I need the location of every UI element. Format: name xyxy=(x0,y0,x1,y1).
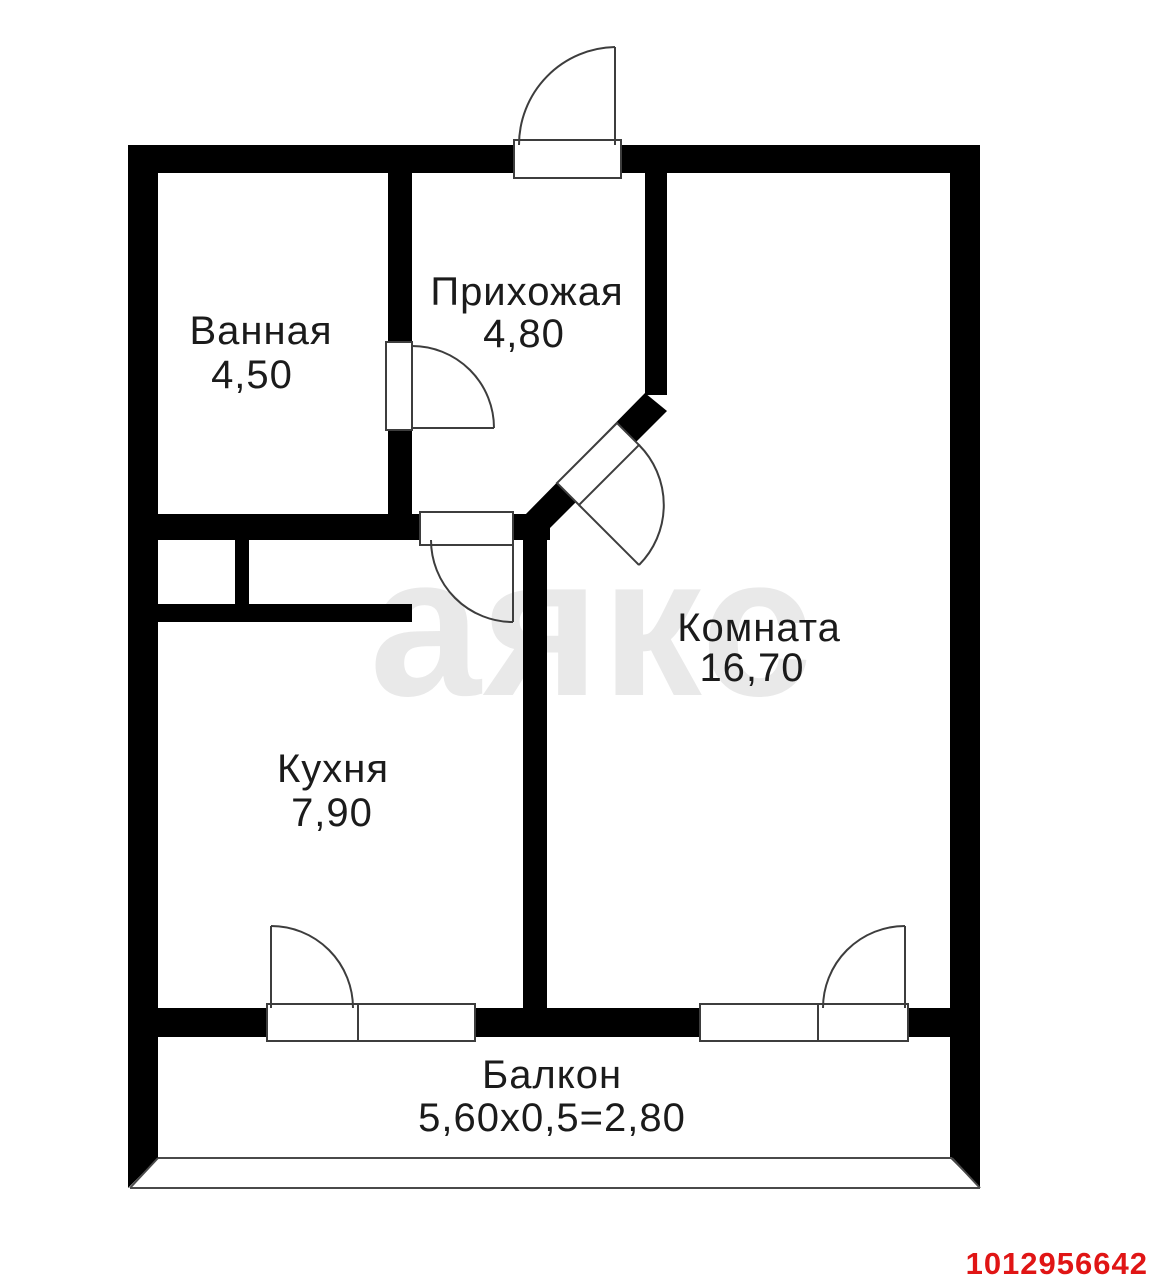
kitchen-label: Кухня xyxy=(277,747,389,791)
bathroom-door-frame xyxy=(386,342,412,430)
bathroom-door-swing-arc xyxy=(412,346,494,428)
room-balcony-door xyxy=(700,926,908,1041)
room-balcony-frame xyxy=(700,1004,908,1041)
closet-bottom-wall xyxy=(158,604,412,622)
balcony-wall-segment-middle xyxy=(475,1008,700,1037)
balcony-wall-segment-left xyxy=(128,1008,267,1037)
balcony-slab xyxy=(130,1158,980,1188)
closet-divider-wall xyxy=(235,540,249,604)
kitchen-room-wall xyxy=(523,514,547,1008)
floor-plan-page: аякс xyxy=(0,0,1167,1280)
bathroom-label: Ванная xyxy=(189,309,332,353)
kitchen-balcony-door-swing-arc xyxy=(271,926,353,1008)
entrance-door-frame xyxy=(514,140,621,178)
hallway-right-wall xyxy=(645,173,667,395)
balcony-label: Балкон xyxy=(482,1053,622,1097)
room-area: 16,70 xyxy=(699,646,804,690)
room-label: Комната xyxy=(677,606,841,650)
kitchen-door-frame xyxy=(420,512,513,545)
floor-plan-drawing: аякс xyxy=(0,0,1167,1280)
entrance-door-swing-arc xyxy=(519,47,615,145)
room-door-frame xyxy=(557,423,639,505)
entrance-door xyxy=(514,47,621,178)
kitchen-area: 7,90 xyxy=(291,791,373,835)
top-wall-left-segment xyxy=(128,145,514,173)
left-exterior-wall xyxy=(128,145,158,1158)
bathroom-hallway-wall-lower xyxy=(388,430,412,514)
balcony-wall-segment-right xyxy=(908,1008,980,1037)
kitchen-balcony-door xyxy=(267,926,475,1041)
bathroom-hallway-wall-upper xyxy=(388,173,412,342)
kitchen-balcony-frame xyxy=(267,1004,475,1041)
right-exterior-wall xyxy=(950,145,980,1158)
listing-id: 1012956642 xyxy=(966,1246,1148,1280)
bathroom-bottom-wall xyxy=(158,514,420,540)
hallway-area: 4,80 xyxy=(483,312,565,356)
balcony-area: 5,60х0,5=2,80 xyxy=(418,1096,686,1140)
room-balcony-door-swing-arc xyxy=(823,926,905,1008)
bathroom-area: 4,50 xyxy=(211,353,293,397)
hallway-label: Прихожая xyxy=(430,270,623,314)
bathroom-door xyxy=(386,342,494,430)
top-wall-right-segment xyxy=(621,145,980,173)
